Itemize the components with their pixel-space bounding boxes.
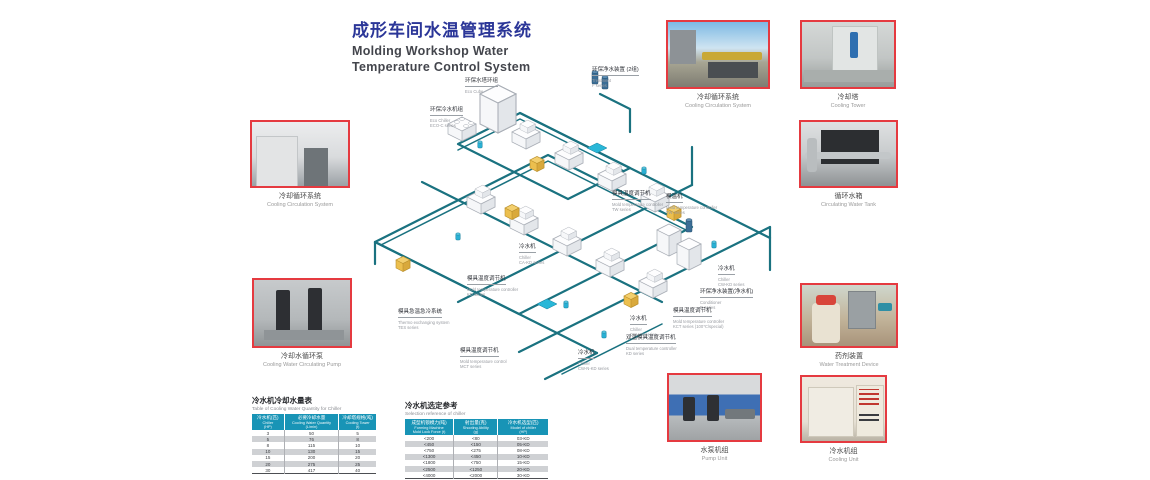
diagram-label-purifier-f: 环保净水装置 (2组) Treatment F series	[592, 57, 639, 89]
photo-image	[252, 278, 352, 348]
diagram-label-mold-temp-tw: 模具温度调节机 Mold temperature controller TW s…	[612, 181, 663, 213]
table-cell: 417	[284, 467, 339, 474]
photo-caption-en: Cooling Unit	[800, 457, 887, 463]
photo-caption-zh: 药剂装置	[800, 351, 898, 361]
table-row: <2500<125020-KD	[405, 466, 548, 472]
cooling-water-quantity-table: 冷水机冷却水量表 Table of Cooling Water Quantity…	[252, 395, 376, 474]
table-cell: 40	[339, 467, 376, 474]
photo-caption-zh: 冷却塔	[800, 92, 896, 102]
table-cell: 30-KD	[498, 472, 548, 479]
photo-image	[800, 20, 896, 89]
table-row: 3041740	[252, 467, 376, 474]
photo-water-treatment-device: 药剂装置 Water Treatment Device	[800, 283, 898, 368]
photo-cooling-water-pump: 冷却水循环泵 Cooling Water Circulating Pump	[252, 278, 352, 368]
table-row: <750<27508-KD	[405, 447, 548, 453]
photo-cooling-unit: 冷水机组 Cooling Unit	[800, 375, 887, 463]
isometric-piping-diagram: 环保水塔环组 Eco Cube 环保净水装置 (2组) Treatment F …	[0, 0, 1150, 480]
photo-caption-zh: 冷却循环系统	[666, 92, 770, 102]
table-row: <450<15005-KD	[405, 441, 548, 447]
photo-caption-zh: 循环水箱	[799, 191, 898, 201]
diagram-label-thermo-tes: 模具急温急冷系统 Thermo exchanging system TES se…	[398, 299, 449, 331]
table-title-en: Selection reference of chiller	[405, 412, 548, 417]
table-row: <4000<200030-KD	[405, 472, 548, 479]
table-title-en: Table of Cooling Water Quantity for Chil…	[252, 407, 376, 412]
diagram-label-eco-chiller: 环保冷水机组 Eco Chiller ECO-C series	[430, 97, 463, 129]
photo-caption-zh: 冷水机组	[800, 446, 887, 456]
column-header: 必要冷却水量 Cooling Water Quantity (L/min)	[284, 414, 339, 430]
photo-caption-en: Cooling Tower	[800, 103, 896, 109]
photo-circulating-water-tank: 循环水箱 Circulating Water Tank	[799, 120, 898, 208]
column-header: 成型机锁模力(吨) Forming Machine Mold Lock Forc…	[405, 419, 454, 435]
photo-pump-unit: 水泵机组 Pump Unit	[667, 373, 762, 462]
chiller-selection-table: 冷水机选定参考 Selection reference of chiller 成…	[405, 400, 548, 479]
table: 冷水机(匹) Chiller (HP) 必要冷却水量 Cooling Water…	[252, 414, 376, 474]
diagram-label-mold-temp-mct: 模具温度调节机 Mold temperature control MCT ser…	[460, 338, 507, 370]
photo-image	[666, 20, 770, 89]
column-header: 冷却塔规格(吨) Cooling Tower (t)	[339, 414, 376, 430]
table: 成型机锁模力(吨) Forming Machine Mold Lock Forc…	[405, 419, 548, 479]
photo-caption-en: Circulating Water Tank	[799, 202, 898, 208]
table-row: <1800<75015-KD	[405, 460, 548, 466]
photo-image	[800, 375, 887, 443]
table-cell: 30	[252, 467, 284, 474]
diagram-label-mold-temp-kd: 模具温度调节机 Mold temperature controller KD s…	[467, 266, 518, 298]
table-title-zh: 冷水机冷却水量表	[252, 395, 376, 406]
table-cell: <4000	[405, 472, 454, 479]
photo-cooling-tower: 冷却塔 Cooling Tower	[800, 20, 896, 109]
table-cell: <2000	[454, 472, 498, 479]
column-header: 射出量(克) Shooting Ability (g)	[454, 419, 498, 435]
photo-caption-en: Cooling Circulation System	[250, 202, 350, 208]
photo-caption-en: Cooling Water Circulating Pump	[252, 362, 352, 368]
brochure-page: 成形车间水温管理系统 Molding Workshop Water Temper…	[0, 0, 1150, 480]
photo-image	[800, 283, 898, 348]
photo-image	[799, 120, 898, 188]
photo-caption-en: Cooling Circulation System	[666, 103, 770, 109]
photo-cooling-circulation-left: 冷却循环系统 Cooling Circulation System	[250, 120, 350, 208]
diagram-label-mold-temp-tw2: 模温机 Mold temperature controller TW serie…	[666, 184, 717, 216]
photo-image	[250, 120, 350, 188]
photo-image	[667, 373, 762, 442]
photo-caption-en: Pump Unit	[667, 456, 762, 462]
photo-caption-en: Water Treatment Device	[800, 362, 898, 368]
photo-caption-zh: 水泵机组	[667, 445, 762, 455]
column-header: 冷水机选型(匹) Model of chiller (HP)	[498, 419, 548, 435]
diagram-label-dual-temp: 双温模具温度调节机 Dual temperature controller KD…	[626, 325, 677, 357]
diagram-label-mold-temp-kct: 模具温度调节机 Mold temperature controller KCT …	[673, 298, 724, 330]
diagram-label-eco-cube: 环保水塔环组 Eco Cube	[465, 68, 498, 94]
column-header: 冷水机(匹) Chiller (HP)	[252, 414, 284, 430]
table-row: <1300<45010-KD	[405, 454, 548, 460]
table-row: <200<8003-KD	[405, 435, 548, 441]
photo-cooling-circulation-right: 冷却循环系统 Cooling Circulation System	[666, 20, 770, 109]
diagram-label-chiller-ca: 冷水机 Chiller CA-KD series	[519, 234, 544, 266]
table-title-zh: 冷水机选定参考	[405, 400, 548, 411]
diagram-label-chiller-cw-n: 冷水机 Chiller CW-N-KD series	[578, 340, 609, 372]
photo-caption-zh: 冷却循环系统	[250, 191, 350, 201]
photo-caption-zh: 冷却水循环泵	[252, 351, 352, 361]
